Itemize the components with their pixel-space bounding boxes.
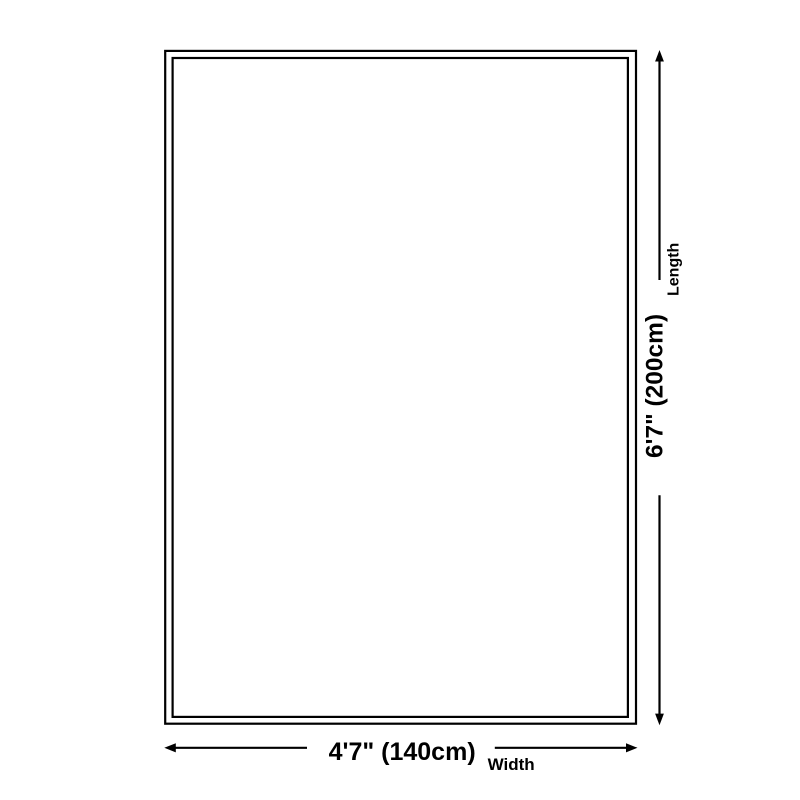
svg-text:Length: Length: [666, 243, 683, 296]
svg-text:4'7" (140cm): 4'7" (140cm): [329, 738, 476, 766]
svg-text:6'7" (200cm): 6'7" (200cm): [642, 314, 669, 458]
svg-text:Width: Width: [488, 755, 535, 774]
